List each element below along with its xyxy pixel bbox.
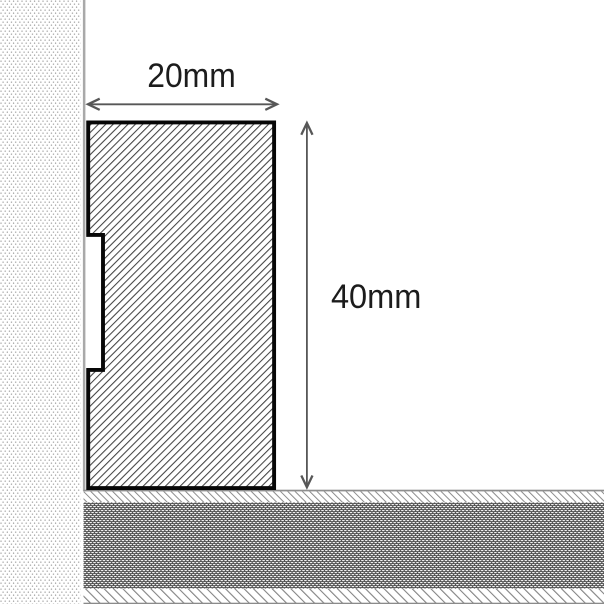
svg-text:40mm: 40mm [331, 278, 422, 316]
svg-text:20mm: 20mm [147, 57, 236, 95]
